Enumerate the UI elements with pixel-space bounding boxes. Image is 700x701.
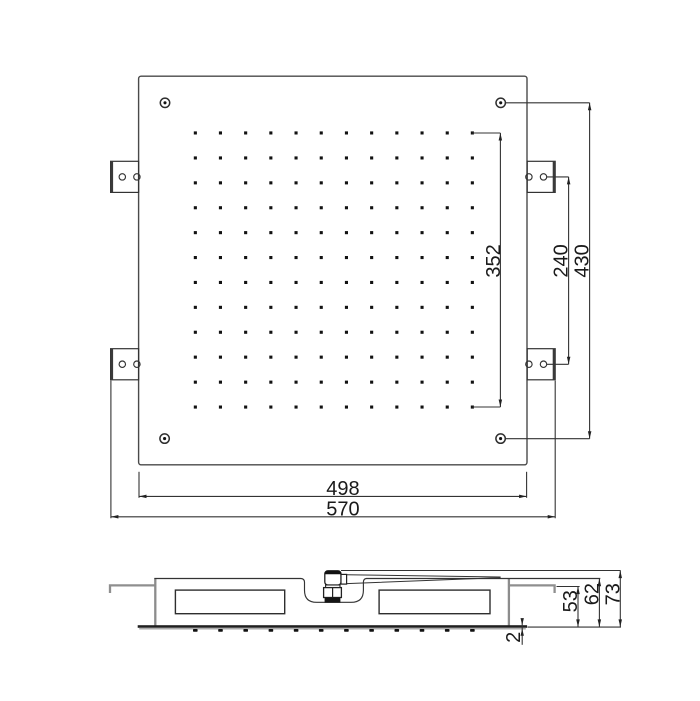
svg-text:498: 498	[326, 478, 359, 500]
svg-text:430: 430	[572, 244, 594, 277]
svg-text:240: 240	[551, 244, 573, 277]
svg-text:53: 53	[560, 590, 582, 612]
svg-text:570: 570	[326, 499, 359, 521]
svg-text:352: 352	[483, 244, 505, 277]
svg-text:62: 62	[581, 583, 603, 605]
svg-text:2: 2	[503, 632, 525, 643]
svg-text:73: 73	[602, 583, 624, 605]
